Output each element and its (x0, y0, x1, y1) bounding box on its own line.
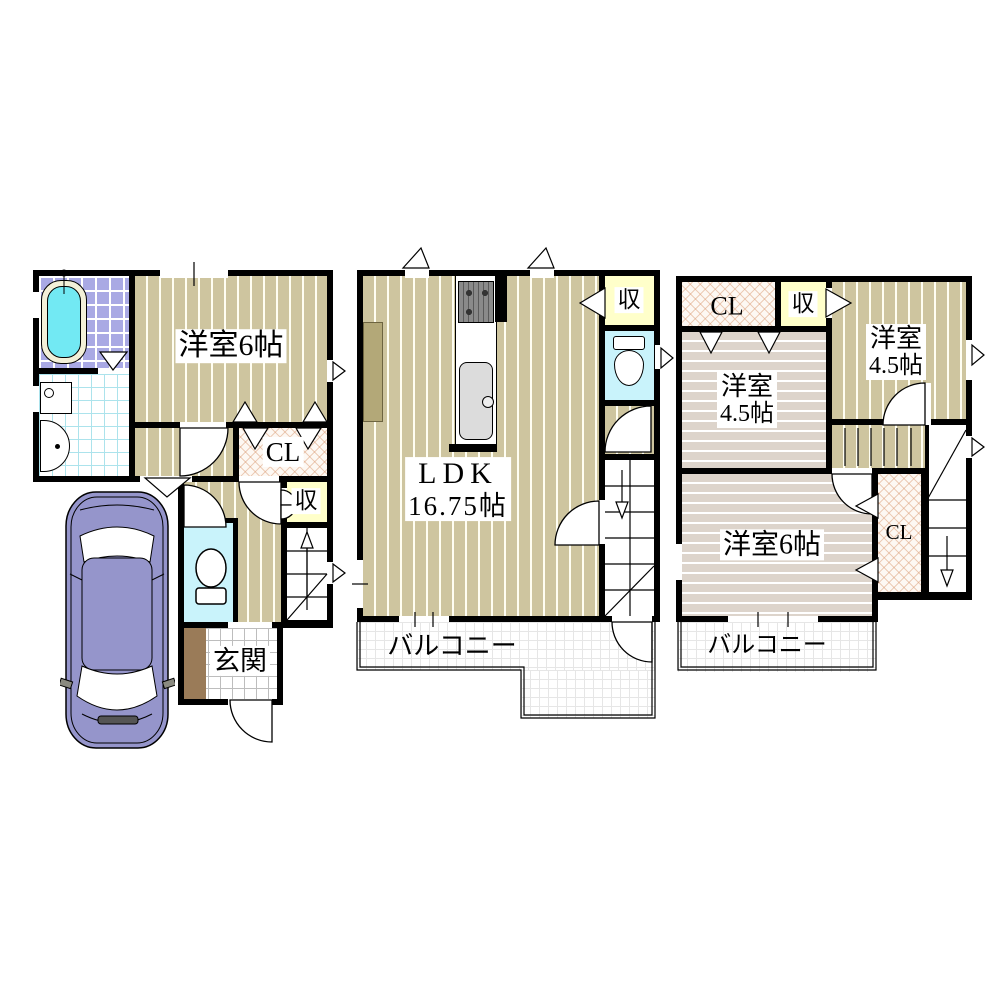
room-label-balcony-3f: バルコニー (704, 633, 830, 660)
room-label-ldk: LDK 16.75帖 (405, 457, 511, 521)
sink-faucet (44, 388, 54, 398)
toilet-tank-2f (613, 336, 645, 350)
opening-room6-3f (832, 468, 872, 474)
ldk-size: 16.75帖 (408, 491, 508, 521)
car-icon (60, 488, 175, 754)
western45-left-size: 4.5帖 (720, 401, 774, 428)
room-label-balcony-2f: バルコニー (384, 631, 519, 660)
floor-plan-canvas: 洋室6帖 CL 収 玄関 LDK 16.75帖 収 バルコニー CL 収 洋室 … (0, 0, 1000, 1000)
ldk-name: LDK (408, 457, 508, 491)
window-3f-right-a (966, 340, 972, 380)
room-label-western45-left: 洋室 4.5帖 (717, 372, 777, 428)
western45-right-name: 洋室 (869, 324, 923, 353)
sink-icon (40, 382, 72, 414)
window-3f-right-b (966, 436, 972, 458)
bathtub-water (47, 286, 81, 358)
room-label-closet-3f-bottom: CL (883, 521, 916, 545)
western45-left-name: 洋室 (720, 372, 774, 401)
vanity-drain (55, 444, 60, 449)
stairs-3f (927, 425, 966, 592)
opening-room45-right (925, 383, 931, 425)
room-label-storage-3f: 収 (789, 291, 818, 317)
room-label-western45-right: 洋室 4.5帖 (866, 324, 926, 380)
opening-storage-3f (826, 288, 832, 318)
window-3f-balcony (728, 616, 818, 622)
stairs-3f-landing (832, 425, 925, 468)
western45-right-size: 4.5帖 (869, 353, 923, 380)
room-label-closet-3f-top: CL (707, 291, 746, 320)
room-label-storage-1f: 収 (292, 488, 321, 514)
room-label-entrance: 玄関 (210, 646, 270, 676)
bathtub-icon (41, 280, 87, 364)
room-label-storage-2f: 収 (615, 287, 644, 313)
window-3f-left (676, 544, 682, 580)
room-label-western6-1f: 洋室6帖 (176, 329, 287, 363)
room-label-closet-1f: CL (263, 437, 304, 467)
room-label-western6-3f: 洋室6帖 (720, 529, 824, 560)
